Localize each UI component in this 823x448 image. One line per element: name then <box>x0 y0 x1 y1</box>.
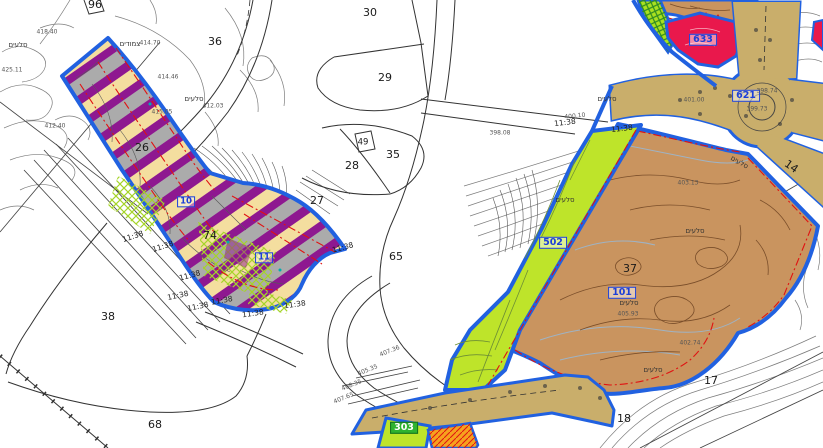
parcel-49: 49 <box>358 138 369 147</box>
label-roadnum: 11:38 <box>331 241 354 255</box>
label-elev: 407.36 <box>379 345 401 359</box>
label-heb: סלעים <box>597 96 616 104</box>
label-elev: 414.70 <box>140 41 161 48</box>
parcel-17: 17 <box>704 375 718 387</box>
label-roadnum: 11:38 <box>242 308 265 319</box>
label-elev: 412.03 <box>203 104 224 111</box>
label-heb: סלעים <box>619 300 638 308</box>
lot-box-11: 11 <box>255 252 273 263</box>
parcel-38: 38 <box>101 311 115 323</box>
parcel-35: 35 <box>386 149 400 161</box>
zone-box-633: 633 <box>689 34 717 46</box>
label-elev: 398.08 <box>490 131 511 138</box>
label-heb: סלעים <box>643 367 662 375</box>
parcel-68: 68 <box>148 419 162 431</box>
label-heb: סלעים <box>8 42 27 50</box>
parcel-96: 96 <box>88 0 102 11</box>
parcel-18: 18 <box>617 413 631 425</box>
zone-box-101: 101 <box>608 287 636 299</box>
label-elev: 418.40 <box>37 30 58 37</box>
label-roadnum: 11:38 <box>178 269 201 283</box>
zone-box-303: 303 <box>390 422 418 434</box>
label-heb: סלעים <box>685 228 704 236</box>
label-elev: 425.11 <box>2 68 23 75</box>
parcel-26: 26 <box>135 142 149 154</box>
lot-box-10: 10 <box>177 196 195 207</box>
label-heb: סלעים <box>555 197 574 205</box>
parcel-37: 37 <box>623 263 637 275</box>
label-roadnum: 11:38 <box>151 240 174 255</box>
label-elev: 405.93 <box>618 312 639 319</box>
label-elev: 405.35 <box>357 364 379 378</box>
label-roadnum: 11:38 <box>187 301 210 314</box>
label-elev: 398.74 <box>757 89 778 96</box>
parcel-27: 27 <box>310 195 324 207</box>
label-heb: סלעים <box>184 96 203 104</box>
label-roadnum: 11:38 <box>121 230 144 245</box>
parcel-14: 14 <box>782 158 800 176</box>
label-heb: צמודים <box>120 41 141 49</box>
label-elev: 400.10 <box>564 113 586 122</box>
label-roadnum: 11:38 <box>167 290 190 303</box>
zone-box-502: 502 <box>539 237 567 249</box>
label-elev: 399.73 <box>747 107 768 114</box>
plan-map[interactable]: 9636302935282749652674386837171814101150… <box>0 0 823 448</box>
parcel-30: 30 <box>363 7 377 19</box>
parcel-36: 36 <box>208 36 222 48</box>
label-elev: 403.13 <box>678 181 699 188</box>
label-elev: 414.46 <box>158 75 179 82</box>
label-roadnum: 11:38 <box>611 124 633 135</box>
parcel-28: 28 <box>345 160 359 172</box>
parcel-29: 29 <box>378 72 392 84</box>
label-elev: 402.74 <box>680 341 701 348</box>
label-heb: סלעים <box>729 155 749 171</box>
label-layer: 9636302935282749652674386837171814101150… <box>0 0 823 448</box>
label-elev: 415.05 <box>152 110 173 117</box>
parcel-65: 65 <box>389 251 403 263</box>
label-elev: 407.65 <box>333 392 355 406</box>
label-roadnum: 11:38 <box>284 299 307 310</box>
label-elev: 401.00 <box>684 98 705 105</box>
label-elev: 412.40 <box>45 124 66 131</box>
label-roadnum: 11:38 <box>211 295 234 307</box>
parcel-74: 74 <box>203 230 217 242</box>
